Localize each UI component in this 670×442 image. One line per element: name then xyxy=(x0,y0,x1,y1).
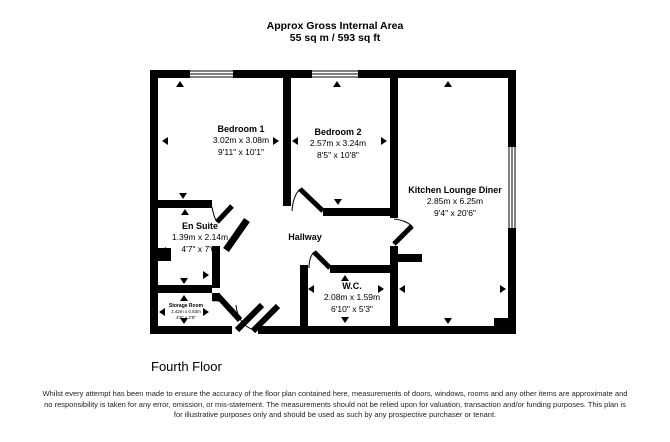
room-dim-metric: 2.57m x 3.24m xyxy=(310,138,366,150)
arrow-down-icon xyxy=(334,199,342,205)
room-name: W.C. xyxy=(324,280,380,292)
wall-bottom-right xyxy=(258,326,516,334)
floorplan-page: Approx Gross Internal Area 55 sq m / 593… xyxy=(0,0,670,442)
arrow-up-icon xyxy=(176,81,184,87)
window-bedroom2-icon xyxy=(312,70,358,78)
wall-kitchen-lower xyxy=(390,246,398,334)
bedroom2-door-icon xyxy=(300,189,323,211)
arrow-down-icon xyxy=(179,193,187,199)
room-name: Kitchen Lounge Diner xyxy=(408,184,502,196)
wall-bottom-left xyxy=(150,326,232,334)
window-kitchen-icon xyxy=(508,147,516,228)
room-dim-metric: 2.85m x 6.25m xyxy=(408,196,502,208)
wall-bedroom1-bottom xyxy=(158,200,212,208)
floorplan-drawing xyxy=(0,0,670,442)
kitchen-door-arc xyxy=(394,219,412,226)
wall-ensuite-storage-divider xyxy=(158,285,212,293)
arrow-up-icon xyxy=(444,81,452,87)
arrow-left-icon xyxy=(159,308,165,316)
arrow-right-icon xyxy=(203,308,209,316)
bedroom2-door-arc xyxy=(292,189,300,211)
room-dim-imperial: 4'7" x 7'0" xyxy=(172,244,228,256)
room-name: Bedroom 2 xyxy=(310,126,366,138)
room-dim-imperial: 8'5" x 10'8" xyxy=(310,150,366,162)
arrow-up-icon xyxy=(181,209,189,215)
wall-corner-block xyxy=(494,318,516,334)
arrow-down-icon xyxy=(180,278,188,284)
room-dim-imperial: 9'4" x 20'6" xyxy=(408,208,502,220)
arrow-left-icon xyxy=(399,285,405,293)
arrow-down-icon xyxy=(341,317,349,323)
arrow-up-icon xyxy=(180,295,188,301)
arrow-right-icon xyxy=(500,285,506,293)
kitchen-label: Kitchen Lounge Diner 2.85m x 6.25m 9'4" … xyxy=(408,184,502,219)
room-dim-imperial: 9'11" x 10'1" xyxy=(213,147,269,159)
wall-bedroom-divider xyxy=(283,78,291,206)
bedroom1-label: Bedroom 1 3.02m x 3.08m 9'11" x 10'1" xyxy=(213,123,269,158)
disclaimer-text: Whilst every attempt has been made to en… xyxy=(41,389,629,421)
room-name: Hallway xyxy=(288,231,322,243)
hallway-label: Hallway xyxy=(288,231,322,243)
wall-bedroom2-bottom xyxy=(323,208,390,216)
room-dim-metric: 3.02m x 3.08m xyxy=(213,135,269,147)
hallway-angled-wall xyxy=(226,220,247,250)
wall-right-upper xyxy=(508,70,516,147)
arrow-right-icon xyxy=(381,137,387,145)
arrow-right-icon xyxy=(203,271,209,279)
room-name: En Suite xyxy=(172,220,228,232)
ensuite-label: En Suite 1.39m x 2.14m 4'7" x 7'0" xyxy=(172,220,228,255)
arrow-down-icon xyxy=(444,318,452,324)
window-bedroom1-icon xyxy=(190,70,233,78)
bedroom2-label: Bedroom 2 2.57m x 3.24m 8'5" x 10'8" xyxy=(310,126,366,161)
room-dim-imperial: 6'10" x 5'3" xyxy=(324,304,380,316)
room-dim-imperial: 4'8" x 2'9" xyxy=(169,315,203,321)
wall-wc-left xyxy=(300,265,308,326)
arrow-right-icon xyxy=(273,137,279,145)
room-dim-metric: 2.08m x 1.59m xyxy=(324,292,380,304)
wc-label: W.C. 2.08m x 1.59m 6'10" x 5'3" xyxy=(324,280,380,315)
wall-wc-top xyxy=(330,265,390,273)
wc-door-icon xyxy=(314,252,330,268)
wall-kitchen-upper xyxy=(390,78,398,218)
wall-kitchen-stub xyxy=(398,254,422,262)
arrow-left-icon xyxy=(292,137,298,145)
wall-left xyxy=(150,70,158,334)
storage-label: Storage Room 1.42m x 0.83m 4'8" x 2'9" xyxy=(169,303,203,321)
floor-label: Fourth Floor xyxy=(151,359,222,374)
room-name: Bedroom 1 xyxy=(213,123,269,135)
arrow-left-icon xyxy=(162,137,168,145)
arrow-up-icon xyxy=(333,81,341,87)
kitchen-door-icon xyxy=(394,226,412,244)
arrow-left-icon xyxy=(308,285,314,293)
room-dim-metric: 1.39m x 2.14m xyxy=(172,232,228,244)
